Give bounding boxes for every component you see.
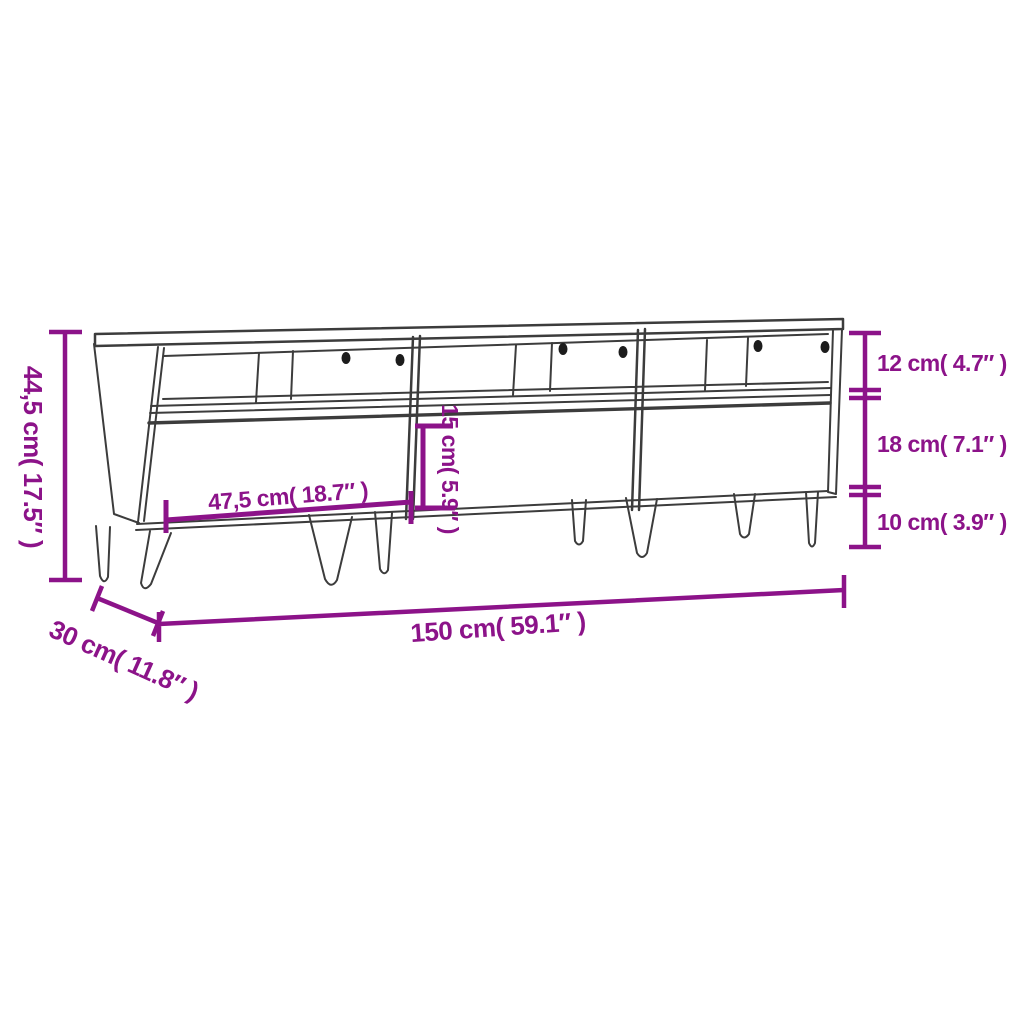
cabinet-diagram-svg [0, 0, 1024, 1024]
shelf-edges [150, 382, 831, 413]
leg-front-right [806, 492, 818, 547]
dimension-label-inner-height: 15 cm( 5.9″ ) [436, 371, 464, 567]
leg-back-left [96, 526, 110, 581]
dimension-line-total-depth [92, 586, 163, 636]
diagram-canvas: 44,5 cm( 17.5″ ) 12 cm( 4.7″ ) 18 cm( 7.… [0, 0, 1024, 1024]
dimension-lines [49, 332, 881, 642]
cabinet-left-panel [94, 344, 164, 523]
cable-hole [754, 340, 763, 352]
leg-back-mid-right [572, 500, 586, 545]
dimension-label-drawer-height: 18 cm( 7.1″ ) [877, 430, 1007, 458]
cable-hole [559, 343, 568, 355]
cable-hole [396, 354, 405, 366]
dimension-label-leg-height: 10 cm( 3.9″ ) [877, 508, 1007, 536]
cabinet-drawing [94, 319, 843, 588]
dimension-label-total-height: 44,5 cm( 17.5″ ) [18, 336, 48, 578]
leg-front-mid-left [309, 515, 352, 585]
leg-back-mid-left [375, 512, 392, 573]
cable-hole [619, 346, 628, 358]
cabinet-top-panel [95, 319, 843, 346]
dimension-label-opening-height: 12 cm( 4.7″ ) [877, 349, 1007, 377]
drawer-top-edge [149, 403, 830, 423]
cable-hole [821, 341, 830, 353]
cable-hole [342, 352, 351, 364]
cabinet-right-panel [828, 329, 842, 494]
cable-holes [342, 340, 830, 366]
leg-front-left [141, 531, 171, 588]
dimension-line-total-height [49, 332, 82, 580]
